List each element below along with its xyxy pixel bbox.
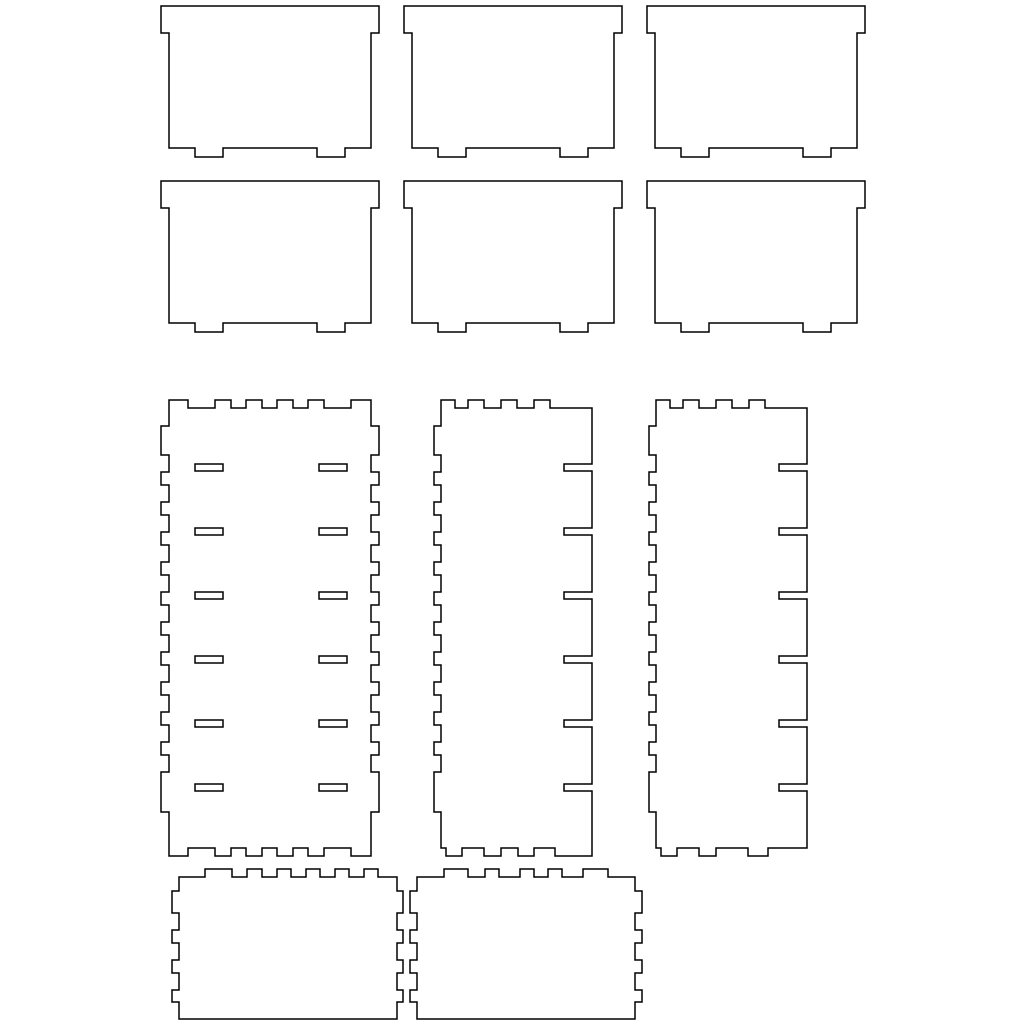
side-panel-notched-2 — [649, 400, 807, 856]
tray-panel-6 — [647, 181, 865, 332]
end-panel-1 — [172, 869, 403, 1019]
laser-cut-canvas — [0, 0, 1024, 1024]
side-panel-notched-1 — [434, 400, 592, 856]
tray-panel-2 — [404, 6, 622, 157]
end-panel-2 — [410, 869, 642, 1019]
tray-panel-3 — [647, 6, 865, 157]
tray-panel-4 — [161, 181, 379, 332]
tray-panel-1 — [161, 6, 379, 157]
laser-cut-template-page — [0, 0, 1024, 1024]
back-panel-slotted — [161, 400, 379, 856]
tray-panel-5 — [404, 181, 622, 332]
